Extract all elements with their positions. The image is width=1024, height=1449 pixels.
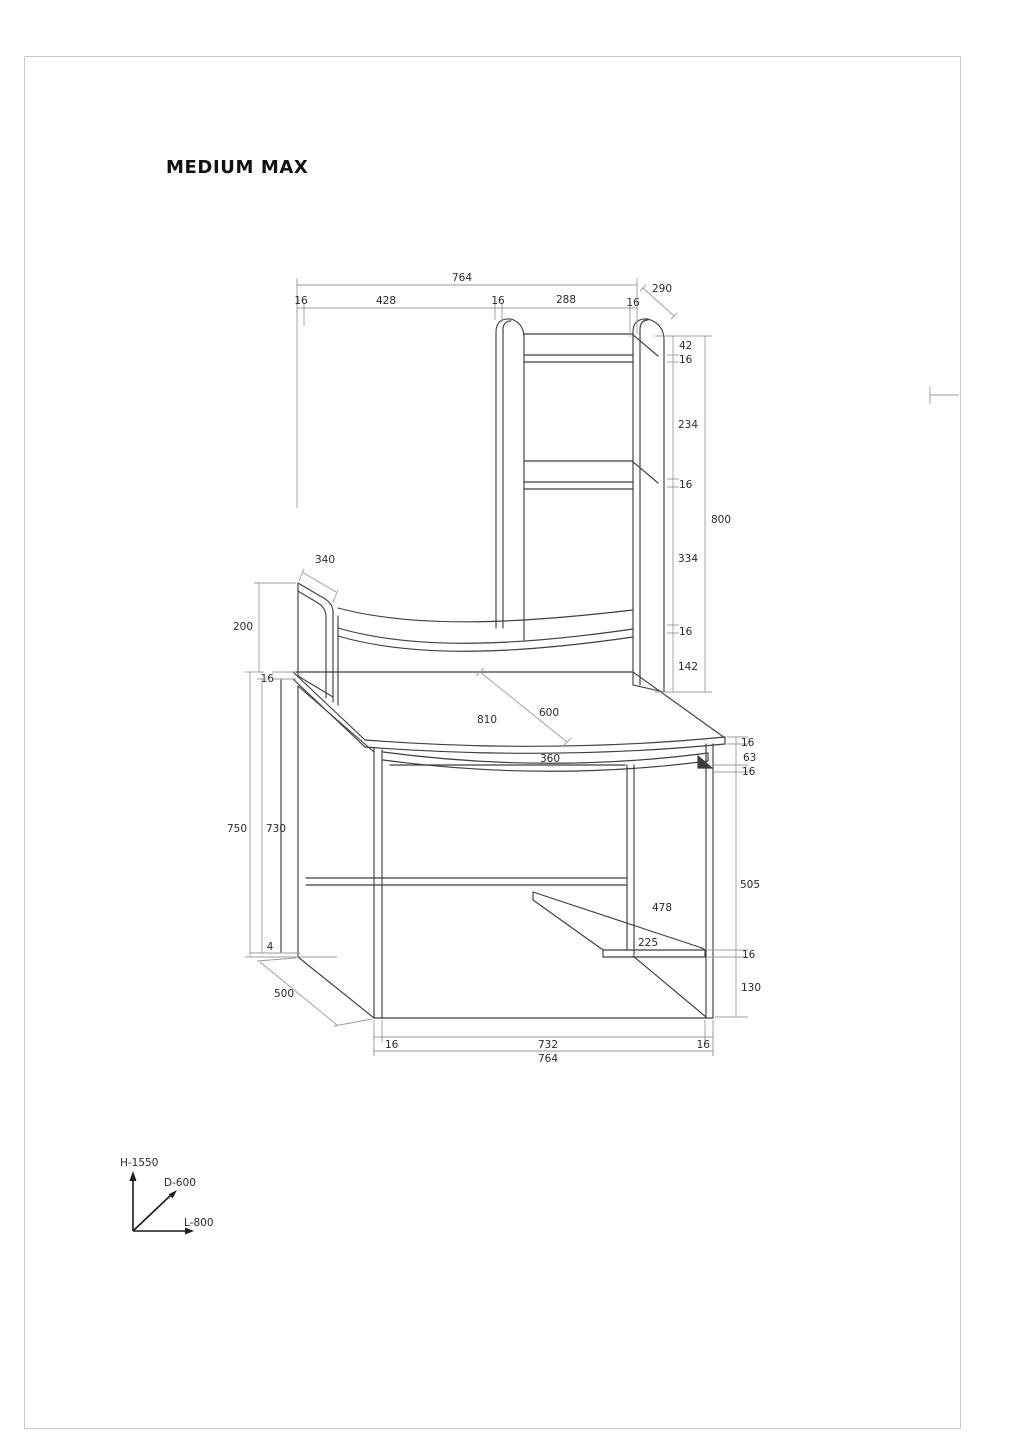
dim-desk-depth: 600 [539,707,559,719]
dim-lp-depth: 340 [315,554,335,566]
dim-shelf-depth: 478 [652,902,672,914]
axis-height-label: H-1550 [120,1157,158,1169]
dim-top-t1: 16 [294,295,308,307]
dim-ru-a3: 234 [678,419,698,431]
page-title: MEDIUM MAX [166,157,308,178]
dim-desk-tray: 360 [540,753,560,765]
dim-top-t5: 16 [626,297,640,309]
dim-top-t3: 16 [491,295,505,307]
dim-ll-outer: 750 [227,823,247,835]
dim-desk-width: 810 [477,714,497,726]
dim-rl-b3: 16 [742,766,756,778]
dim-bottom-left: 16 [385,1039,399,1051]
dim-ll-base: 4 [267,941,274,953]
dim-ll-depth: 500 [274,988,294,1000]
dim-ru-total: 800 [711,514,731,526]
dim-rl-b2: 63 [743,752,756,764]
dim-bottom-middle: 732 [538,1039,558,1051]
axis-depth-label: D-600 [164,1177,196,1189]
technical-drawing: MEDIUM MAX [0,0,1024,1449]
dim-top-t4: 288 [556,294,576,306]
dim-bottom-total: 764 [538,1053,558,1065]
axis-length-label: L-800 [184,1217,214,1229]
dim-hutch-depth: 290 [652,283,672,295]
drawing-sheet: MEDIUM MAX [0,0,1024,1449]
dim-ru-a6: 16 [679,626,693,638]
dim-top-total: 764 [452,272,472,284]
dim-ru-a4: 16 [679,479,693,491]
dim-rl-b4: 505 [740,879,760,891]
dim-lp-height: 200 [233,621,253,633]
dim-ll-inner: 730 [266,823,286,835]
dim-top-t2: 428 [376,295,396,307]
page-border [25,57,961,1429]
dim-rl-b6: 130 [741,982,761,994]
dim-ru-a7: 142 [678,661,698,673]
dim-ru-a2: 16 [679,354,693,366]
dim-rl-b5: 16 [742,949,756,961]
dim-shelf-width: 225 [638,937,658,949]
dim-rl-b1: 16 [741,737,755,749]
dim-ru-a1: 42 [679,340,692,352]
dim-bottom-right: 16 [697,1039,711,1051]
dim-ru-a5: 334 [678,553,698,565]
